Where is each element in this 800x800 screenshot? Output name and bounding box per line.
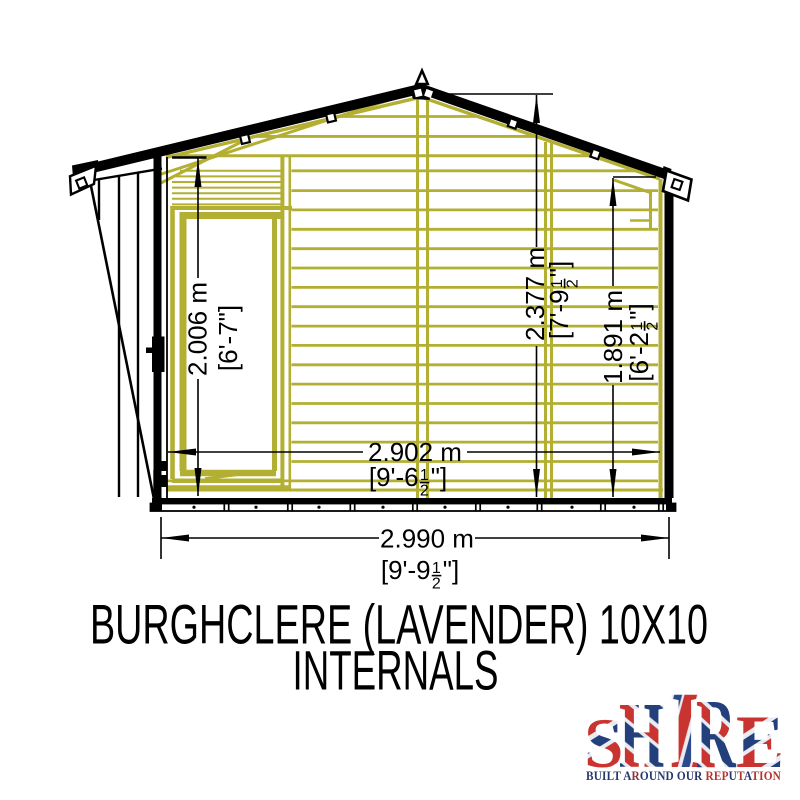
svg-text:2: 2 [565, 279, 582, 288]
svg-text:1: 1 [549, 279, 566, 288]
svg-text:"]: "] [431, 462, 447, 492]
svg-text:"]: "] [624, 303, 654, 319]
svg-text:[6'-7"]: [6'-7"] [213, 305, 243, 371]
svg-text:1: 1 [432, 560, 441, 577]
svg-text:2: 2 [420, 483, 429, 500]
svg-text:[7'-9: [7'-9 [544, 289, 574, 339]
svg-text:[9'-9: [9'-9 [381, 555, 431, 585]
svg-text:"]: "] [544, 261, 574, 277]
svg-text:1: 1 [420, 467, 429, 484]
svg-text:INTERNALS: INTERNALS [293, 639, 499, 702]
svg-text:[9'-6: [9'-6 [369, 462, 419, 492]
svg-text:2: 2 [645, 322, 662, 331]
svg-text:2.006 m: 2.006 m [183, 282, 213, 376]
svg-text:2.990 m: 2.990 m [380, 524, 474, 554]
svg-text:1: 1 [629, 322, 646, 331]
svg-text:[6'-2: [6'-2 [624, 332, 654, 382]
svg-text:"]: "] [443, 555, 459, 585]
svg-text:2: 2 [432, 576, 441, 593]
svg-text:BUILT AROUND OUR REPUTATION: BUILT AROUND OUR REPUTATION [586, 769, 781, 783]
